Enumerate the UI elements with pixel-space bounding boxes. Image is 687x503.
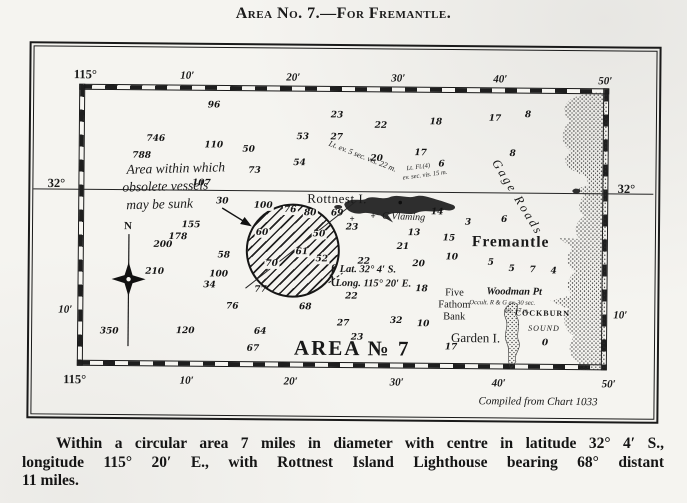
sounding: 110 xyxy=(204,141,223,150)
sounding: 34 xyxy=(203,281,216,290)
sounding: 23 xyxy=(351,334,364,343)
sounding: 746 xyxy=(146,135,165,144)
grid-label-right-32: 32° xyxy=(618,182,636,197)
sounding: 788 xyxy=(132,152,151,161)
place-label-cockburn: COCKBURN xyxy=(515,309,570,318)
sounding: 50 xyxy=(242,146,255,155)
sounding: 27 xyxy=(330,133,343,142)
rock-symbol: + xyxy=(349,215,354,224)
sounding: 6 xyxy=(501,216,507,225)
grid-label-bottom-40: 40′ xyxy=(492,377,506,389)
sounding: 7 xyxy=(529,266,535,275)
grid-label-bottom-50: 50′ xyxy=(602,378,616,390)
sounding: 23 xyxy=(346,224,359,233)
sounding: 69 xyxy=(331,209,344,218)
caption-line-1: Within a circular area 7 miles in diamet… xyxy=(22,435,664,454)
sounding: 32 xyxy=(390,317,403,326)
grid-label-bottom-30: 30′ xyxy=(390,376,404,388)
place-label-fremantle: Fremantle xyxy=(472,233,550,252)
scanned-chart-page: Area No. 7.—For Fremantle. xyxy=(0,0,687,503)
sounding: 0 xyxy=(542,339,548,348)
sounding: 17 xyxy=(445,343,458,352)
sounding: 350 xyxy=(100,327,119,336)
latlong-long: Long. 115° 20′ E. xyxy=(335,278,411,290)
place-label-fathom: Fathom xyxy=(438,299,470,310)
grid-label-top-50: 50′ xyxy=(598,75,612,87)
sounding: 70 xyxy=(264,260,279,269)
sounding: 22 xyxy=(345,293,358,302)
sounding: 15 xyxy=(443,234,456,243)
grid-label-right-10: 10′ xyxy=(613,309,627,321)
sounding: 61 xyxy=(294,248,309,257)
place-label-bank: Bank xyxy=(443,311,465,322)
caption-line-3: 11 miles. xyxy=(22,472,664,491)
grid-label-left-10: 10′ xyxy=(58,304,72,316)
place-label-five: Five xyxy=(445,287,464,298)
sounding: 68 xyxy=(299,303,312,312)
grid-label-bottom-20: 20′ xyxy=(284,376,298,388)
grid-label-top-40: 40′ xyxy=(493,73,507,85)
grid-label-top-20: 20′ xyxy=(286,72,300,84)
sounding: 22 xyxy=(375,122,388,131)
sounding: 5 xyxy=(488,259,494,268)
sounding: 21 xyxy=(397,243,410,252)
sounding: 14 xyxy=(431,208,444,217)
sounding: 4 xyxy=(550,267,556,276)
sounding: 120 xyxy=(176,327,195,336)
sounding: 10 xyxy=(445,253,458,262)
grid-label-top-10: 10′ xyxy=(180,70,194,82)
rock-symbol: + xyxy=(371,212,376,221)
sounding: 210 xyxy=(145,268,164,277)
sounding: 107 xyxy=(192,179,211,188)
sounding: 96 xyxy=(208,101,221,110)
sounding: 10 xyxy=(417,320,430,329)
sounding: 200 xyxy=(153,241,172,250)
sounding: 13 xyxy=(408,229,421,238)
sounding: 76 xyxy=(226,303,239,312)
sounding: 30 xyxy=(216,197,229,206)
sounding: 3 xyxy=(465,219,471,228)
caption-line-2: longitude 115° 20′ E., with Rottnest Isl… xyxy=(22,454,664,473)
sounding: 17 xyxy=(489,115,502,124)
note-arrow xyxy=(222,208,250,225)
place-label-woodman-pt: Woodman Pt xyxy=(486,286,542,297)
sounding: 77 xyxy=(254,286,267,295)
compass-north-label: N xyxy=(124,220,132,232)
light-desc-woodman-1: Occult. R & G ev. 30 sec. xyxy=(469,299,535,307)
caption: Within a circular area 7 miles in diamet… xyxy=(22,435,664,491)
sounding: 23 xyxy=(331,111,344,120)
sounding: 80 xyxy=(303,209,318,218)
sounding: 8 xyxy=(525,111,531,120)
sounding: 64 xyxy=(254,328,267,337)
note-line-1: Area within which xyxy=(126,159,225,178)
coastline-art xyxy=(0,0,687,503)
sounding: 6 xyxy=(438,160,444,169)
sounding: 60 xyxy=(255,229,270,238)
sounding: 27 xyxy=(337,319,350,328)
place-label-garden-i: Garden I. xyxy=(451,330,500,346)
grid-label-bottom-115: 115° xyxy=(63,372,86,387)
sounding: 53 xyxy=(296,133,309,142)
grid-label-top-30: 30′ xyxy=(391,72,405,84)
sounding: 5 xyxy=(508,265,514,274)
grid-label-left-32: 32° xyxy=(48,176,66,191)
sounding: 50 xyxy=(312,230,327,239)
sounding: 22 xyxy=(357,258,370,267)
note-line-3: may be sunk xyxy=(126,196,193,214)
sounding: 100 xyxy=(209,270,228,279)
sounding: 58 xyxy=(217,251,230,260)
sounding: 54 xyxy=(293,159,306,168)
sounding: 76 xyxy=(283,206,298,215)
grid-label-bottom-10: 10′ xyxy=(180,375,194,387)
sounding: 18 xyxy=(415,285,428,294)
sounding: 20 xyxy=(412,260,425,269)
sounding: 100 xyxy=(253,202,274,211)
sounding: 67 xyxy=(247,345,260,354)
chart-credit: Compiled from Chart 1033 xyxy=(478,395,597,408)
chart-map: 115° 10′ 20′ 30′ 40′ 50′ 115° 10′ 20′ 30… xyxy=(0,0,687,503)
place-label-sound: SOUND xyxy=(528,324,560,333)
sounding: 8 xyxy=(509,150,515,159)
place-label-c-vlaming: C Vlaming xyxy=(382,211,426,224)
sounding: 52 xyxy=(314,255,329,264)
rottnest-lighthouse-icon xyxy=(398,201,402,205)
sounding: 18 xyxy=(430,118,443,127)
grid-label-top-115: 115° xyxy=(74,67,97,82)
sounding: 17 xyxy=(414,149,427,158)
sounding: 20 xyxy=(370,155,383,164)
sounding: 73 xyxy=(248,167,261,176)
sounding: 155 xyxy=(182,221,201,230)
place-label-rottnest: Rottnest I. xyxy=(307,191,367,208)
